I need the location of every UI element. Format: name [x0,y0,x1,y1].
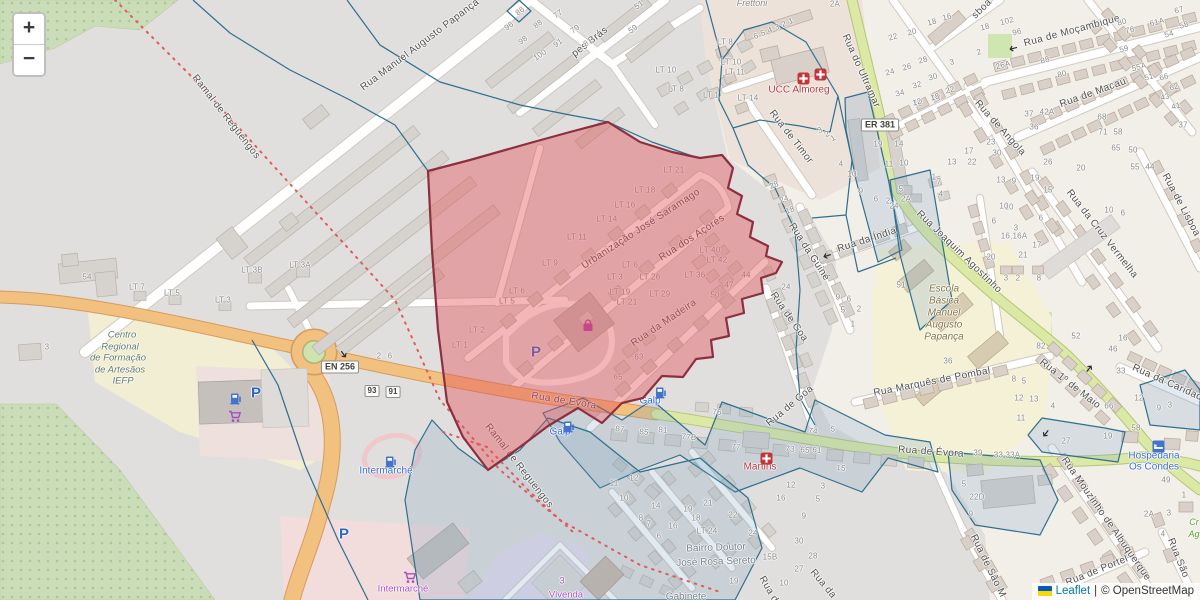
highlight-overlay [0,0,1200,600]
leaflet-link[interactable]: Leaflet [1056,585,1091,597]
ukraine-flag-icon [1038,586,1052,596]
attribution-bar: Leaflet | © OpenStreetMap [1032,583,1200,600]
zoom-control: + − [12,12,46,77]
attribution-separator: | [1094,585,1097,597]
zoom-in-button[interactable]: + [14,14,44,44]
zoom-out-button[interactable]: − [14,44,44,75]
map-canvas[interactable]: Rua Manuel Augusto Papançapes BrásRamal … [0,0,1200,600]
osm-attribution: © OpenStreetMap [1101,585,1194,597]
red-highlight-polygon[interactable] [428,122,782,470]
